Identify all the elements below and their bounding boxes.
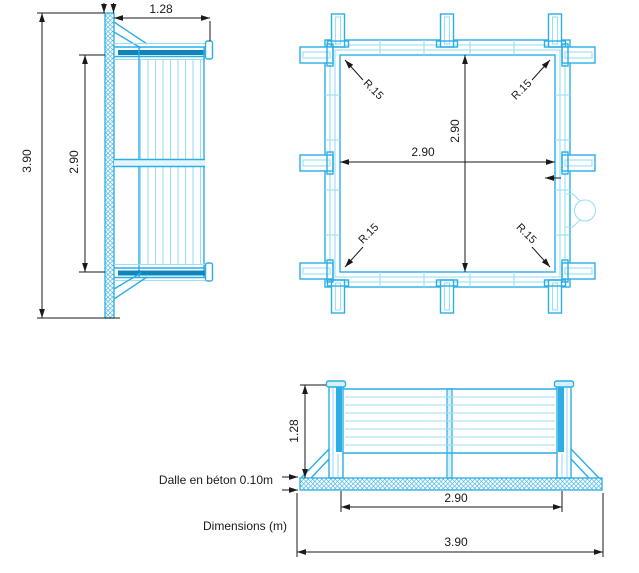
dim-side-top-width-label: 1.28 <box>149 2 173 16</box>
radius-label-top-left: R.15 <box>361 77 386 102</box>
dim-plan-width-label: 2.90 <box>411 145 435 159</box>
technical-drawing-pool-plans: 3.90 2.90 1.28 <box>0 0 639 573</box>
slab-annotation-label: Dalle en béton 0.10m <box>159 473 273 487</box>
radius-callout-bottom-right: R.15 <box>514 221 550 267</box>
dim-plan-width: 2.90 <box>340 145 555 162</box>
plank-joints <box>325 40 570 287</box>
dim-side-inner-height-label: 2.90 <box>67 150 81 174</box>
post-cap-right <box>555 381 574 387</box>
plan-posts-left <box>300 44 333 282</box>
dim-side-top-width: 1.28 <box>114 2 210 41</box>
wall-thickness-arrows-icon <box>104 3 114 13</box>
dim-plan-depth: 2.90 <box>448 55 465 272</box>
front-post-middle <box>447 389 452 478</box>
dim-front-height-label: 1.28 <box>287 419 301 443</box>
dim-side-inner-height: 2.90 <box>67 55 105 272</box>
side-structure <box>114 22 213 299</box>
radius-callout-top-right: R.15 <box>509 60 550 102</box>
radius-label-bottom-left: R.15 <box>356 221 381 246</box>
radius-label-top-right: R.15 <box>509 77 534 102</box>
rail-end-cap-bottom <box>206 263 213 281</box>
dim-front-inner-width-label: 2.90 <box>444 491 468 505</box>
dim-front-total-width-label: 3.90 <box>444 535 468 549</box>
plan-posts-top <box>328 14 566 47</box>
post-cap-left <box>327 381 346 387</box>
dim-front-inner-width: 2.90 <box>341 491 562 512</box>
dim-front-height: 1.28 <box>287 385 326 478</box>
front-elevation-view: 1.28 2.90 3.90 Dalle en béton 0.10m Dime… <box>159 381 603 557</box>
plan-posts-right <box>562 44 595 282</box>
concrete-slab <box>300 478 602 490</box>
dim-plan-depth-label: 2.90 <box>448 119 462 143</box>
front-post-right <box>555 381 574 478</box>
plan-posts-bottom <box>328 280 566 313</box>
rail-end-cap-top <box>206 41 213 59</box>
slab-thickness-arrows-icon <box>282 477 298 490</box>
drawing-canvas: 3.90 2.90 1.28 <box>0 0 639 573</box>
plan-view: 2.90 2.90 R.15 R.15 R.15 R.15 <box>300 14 596 313</box>
radius-callout-top-left: R.15 <box>345 60 386 102</box>
plan-wall-band <box>325 40 570 287</box>
dim-side-total-height-label: 3.90 <box>20 149 34 173</box>
units-annotation-label: Dimensions (m) <box>203 519 287 533</box>
radius-callout-bottom-left: R.15 <box>345 221 381 267</box>
front-post-left <box>327 381 346 478</box>
skimmer-circle <box>575 200 596 221</box>
wall-section <box>105 13 114 318</box>
side-elevation-view: 3.90 2.90 1.28 <box>20 2 213 318</box>
radius-label-bottom-right: R.15 <box>514 221 539 246</box>
